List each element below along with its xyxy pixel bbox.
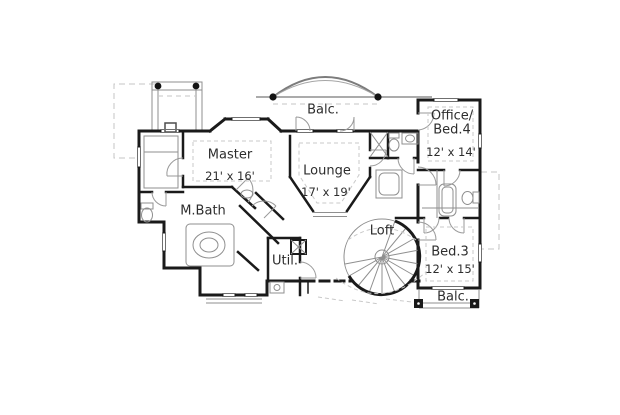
chimney-bump bbox=[165, 123, 176, 132]
room-label-loft: Loft bbox=[370, 224, 394, 239]
midbath-toilet-bowl bbox=[389, 139, 399, 151]
wing-toilet-tank bbox=[473, 192, 479, 203]
room-label-balcony-bottom: Balc. bbox=[437, 290, 469, 305]
shower bbox=[376, 170, 402, 198]
closet-x bbox=[370, 132, 388, 157]
room-label-bed3: Bed.3 bbox=[431, 245, 469, 260]
room-dims-lounge: 17' x 19' bbox=[301, 185, 351, 199]
wing-toilet-bowl bbox=[462, 192, 473, 205]
room-label-balcony-top: Balc. bbox=[307, 103, 339, 118]
floor-plan-page: Balc. Master 21' x 16' Lounge 17' x 19' … bbox=[0, 0, 620, 415]
room-label-util: Util. bbox=[272, 254, 298, 269]
porch-columns bbox=[155, 83, 200, 90]
room-dims-bed3: 12' x 15' bbox=[425, 262, 475, 276]
room-dims-office: 12' x 14' bbox=[426, 145, 476, 159]
floor-plan-drawing bbox=[0, 0, 620, 415]
room-label-master: Master bbox=[208, 148, 252, 163]
toilet-left-bowl bbox=[142, 208, 153, 222]
room-label-lounge: Lounge bbox=[303, 164, 351, 179]
room-dims-master: 21' x 16' bbox=[205, 169, 255, 183]
room-label-office-line2: Bed.4 bbox=[433, 123, 471, 138]
room-label-office-line1: Office/ bbox=[431, 109, 473, 124]
closet-x-small bbox=[291, 240, 306, 254]
washer bbox=[270, 282, 284, 293]
top-porch bbox=[152, 82, 202, 131]
master-bath-sink bbox=[241, 190, 253, 198]
room-label-mbath: M.Bath bbox=[180, 204, 226, 219]
midbath-toilet-tank bbox=[389, 133, 399, 138]
top-balcony bbox=[256, 77, 432, 104]
